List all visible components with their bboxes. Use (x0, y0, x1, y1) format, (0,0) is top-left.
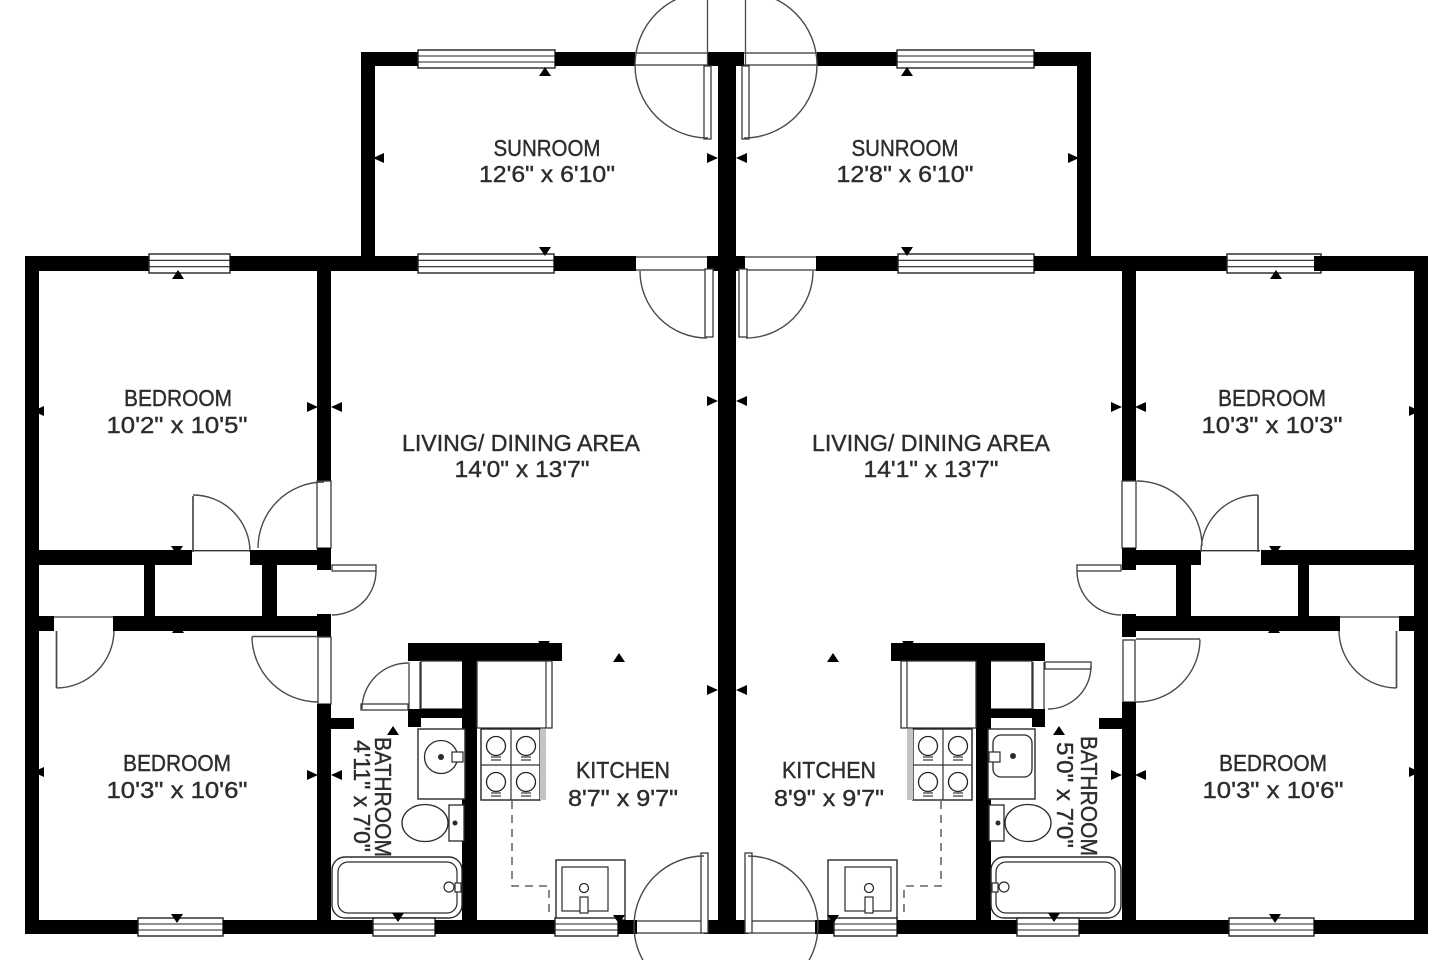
svg-text:KITCHEN: KITCHEN (782, 757, 876, 783)
svg-text:SUNROOM: SUNROOM (494, 135, 601, 161)
svg-text:8'7" x 9'7": 8'7" x 9'7" (568, 785, 678, 811)
svg-text:12'8" x 6'10": 12'8" x 6'10" (837, 161, 974, 187)
svg-text:8'9" x 9'7": 8'9" x 9'7" (774, 785, 884, 811)
svg-text:14'0" x 13'7": 14'0" x 13'7" (455, 456, 590, 482)
svg-text:LIVING/ DINING AREA: LIVING/ DINING AREA (402, 430, 641, 456)
svg-text:10'3" x 10'6": 10'3" x 10'6" (1203, 777, 1344, 803)
svg-text:BEDROOM: BEDROOM (123, 750, 231, 776)
svg-text:10'3" x 10'3": 10'3" x 10'3" (1202, 412, 1343, 438)
svg-text:BATHROOM: BATHROOM (1076, 736, 1102, 856)
svg-text:14'1" x 13'7": 14'1" x 13'7" (864, 456, 999, 482)
svg-text:10'3" x 10'6": 10'3" x 10'6" (107, 777, 248, 803)
svg-text:BEDROOM: BEDROOM (124, 385, 232, 411)
svg-text:KITCHEN: KITCHEN (576, 757, 670, 783)
svg-text:LIVING/ DINING AREA: LIVING/ DINING AREA (812, 430, 1051, 456)
svg-text:5'0" x 7'0": 5'0" x 7'0" (1052, 742, 1078, 848)
svg-text:BEDROOM: BEDROOM (1218, 385, 1326, 411)
svg-text:12'6" x 6'10": 12'6" x 6'10" (479, 161, 615, 187)
svg-text:SUNROOM: SUNROOM (852, 135, 959, 161)
svg-text:BEDROOM: BEDROOM (1219, 750, 1327, 776)
svg-text:4'11" x 7'0": 4'11" x 7'0" (349, 740, 375, 852)
svg-text:10'2" x 10'5": 10'2" x 10'5" (107, 412, 248, 438)
